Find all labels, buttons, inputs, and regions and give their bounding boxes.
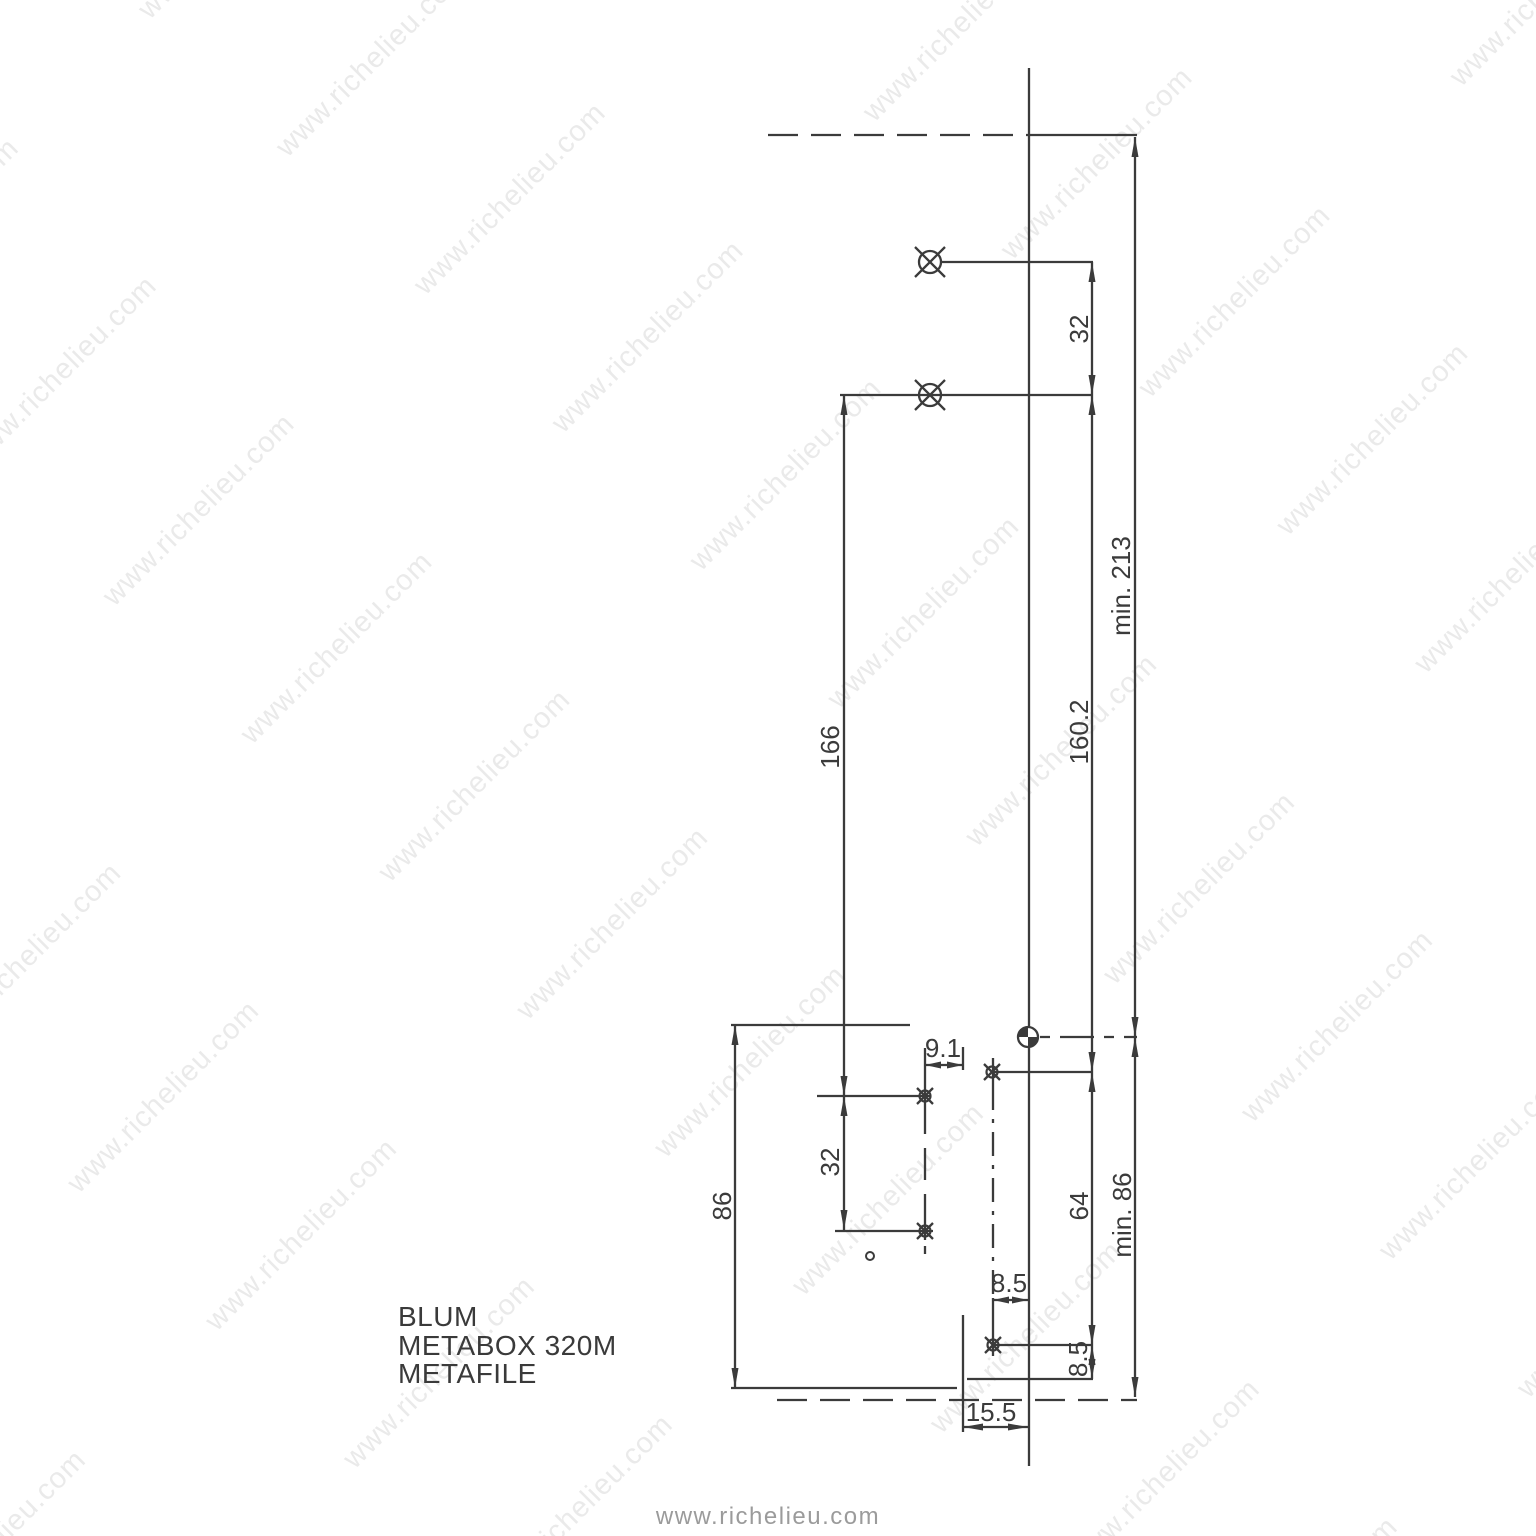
dim-label-rail-span-right: 160.2 (1064, 699, 1094, 764)
dim-label-hole-spacing-back: 64 (1064, 1192, 1094, 1221)
drilling-diagram: 32 min. 213 166 160.2 86 32 9.1 64 min. … (0, 0, 1536, 1536)
dim-label-back-hole-offset-v: 8.5 (1063, 1341, 1093, 1377)
dim-label-hole-spacing-top: 32 (1064, 315, 1094, 344)
arrow (841, 395, 848, 415)
arrow (841, 1096, 848, 1116)
title-brand: BLUM (398, 1303, 617, 1332)
hole-marker-back-lower (985, 1337, 1001, 1353)
dim-label-hole-spacing-front: 32 (815, 1148, 845, 1177)
title-variant: METAFILE (398, 1360, 617, 1389)
arrow (1132, 1037, 1139, 1057)
footer-url: www.richelieu.com (0, 1503, 1536, 1531)
pilot-hole-dot (866, 1252, 874, 1260)
hole-marker-front-lower (917, 1223, 933, 1239)
hole-marker-back-upper (984, 1064, 1000, 1080)
arrow (841, 1076, 848, 1096)
title-block: BLUM METABOX 320M METAFILE (398, 1303, 617, 1389)
arrow (1132, 1377, 1139, 1397)
arrow (1089, 375, 1096, 395)
arrow (732, 1025, 739, 1045)
arrow (1089, 262, 1096, 282)
dim-label-front-edge-offset: 9.1 (925, 1033, 961, 1063)
arrow (1089, 395, 1096, 415)
dim-label-bottom-edge-inset: 15.5 (966, 1397, 1017, 1427)
reference-lines (731, 262, 1137, 1432)
hole-marker-top-2 (915, 380, 945, 410)
title-product: METABOX 320M (398, 1332, 617, 1361)
arrow (841, 1210, 848, 1230)
dim-label-front-span: 86 (707, 1192, 737, 1221)
arrow (1089, 1072, 1096, 1092)
dimension-labels: 32 min. 213 166 160.2 86 32 9.1 64 min. … (707, 315, 1137, 1427)
arrow (732, 1368, 739, 1388)
arrow (1089, 1052, 1096, 1072)
hole-markers (866, 247, 1001, 1353)
dim-label-min-clearance-bottom: min. 86 (1107, 1172, 1137, 1257)
hole-marker-front-upper (917, 1088, 933, 1104)
datum-point-symbol (1018, 1027, 1038, 1047)
dim-label-back-hole-offset-h: 8.5 (991, 1268, 1027, 1298)
arrow (1132, 137, 1139, 157)
hole-marker-top-1 (915, 247, 945, 277)
dim-label-min-clearance-top: min. 213 (1106, 536, 1136, 636)
arrow (1132, 1017, 1139, 1037)
dim-label-rail-span-left: 166 (815, 725, 845, 768)
